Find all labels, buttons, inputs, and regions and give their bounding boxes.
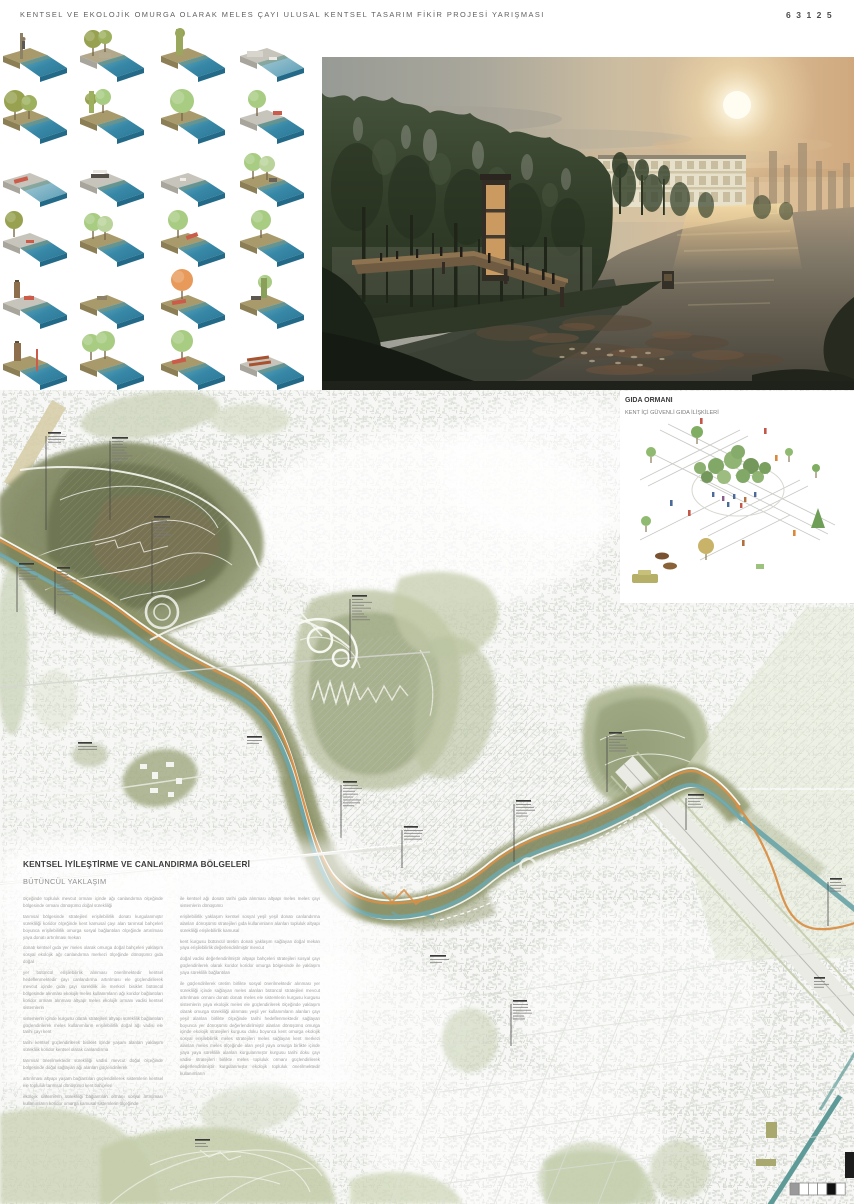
svg-text:KENT İÇİ GÜVENLİ GIDA İLİŞKİLE: KENT İÇİ GÜVENLİ GIDA İLİŞKİLERİ — [625, 409, 719, 416]
svg-text:GIDA ORMANI: GIDA ORMANI — [625, 397, 673, 404]
